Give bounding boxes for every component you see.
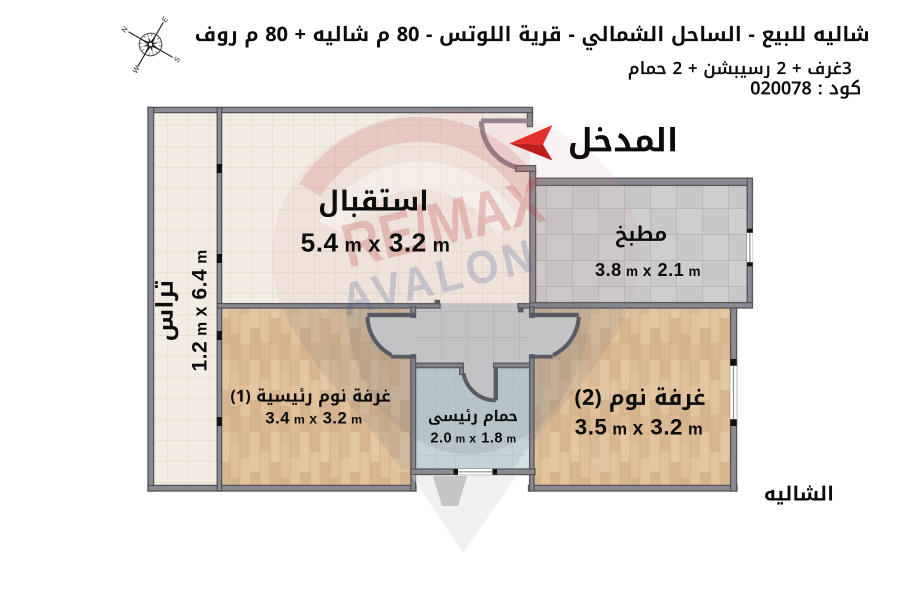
svg-text:2.0 m x 1.8 m: 2.0 m x 1.8 m <box>430 430 516 446</box>
